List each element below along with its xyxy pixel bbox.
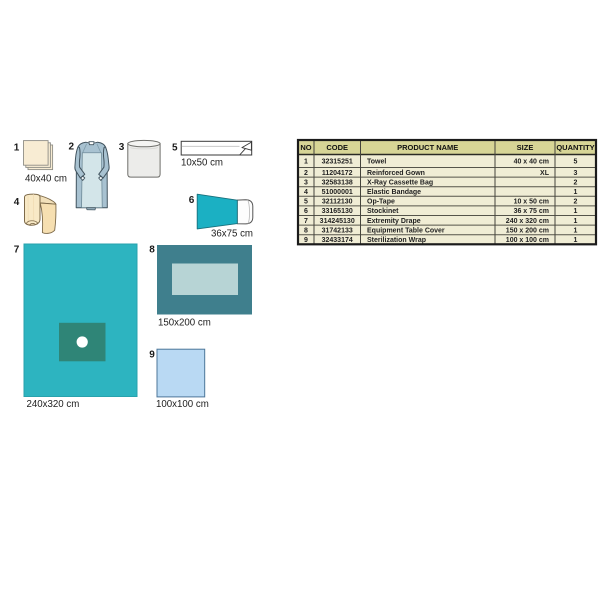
svg-text:4: 4	[304, 189, 308, 196]
svg-text:Equipment Table Cover: Equipment Table Cover	[367, 227, 445, 234]
svg-text:X-Ray Cassette Bag: X-Ray Cassette Bag	[367, 179, 433, 186]
svg-text:9: 9	[304, 237, 308, 244]
svg-text:Stockinet: Stockinet	[367, 208, 399, 215]
svg-text:36x75 cm: 36x75 cm	[211, 229, 253, 240]
svg-text:5: 5	[574, 159, 578, 166]
svg-text:100x100 cm: 100x100 cm	[156, 399, 209, 410]
svg-text:5: 5	[172, 143, 178, 154]
svg-text:CODE: CODE	[326, 143, 348, 152]
svg-text:33165130: 33165130	[322, 208, 353, 215]
svg-text:1: 1	[574, 218, 578, 225]
svg-text:7: 7	[304, 218, 308, 225]
svg-text:40x40 cm: 40x40 cm	[25, 174, 67, 185]
svg-text:Extremity Drape: Extremity Drape	[367, 218, 421, 225]
svg-text:2: 2	[574, 179, 578, 186]
svg-text:NO: NO	[300, 143, 311, 152]
svg-text:2: 2	[69, 141, 75, 152]
svg-text:10x50 cm: 10x50 cm	[181, 157, 223, 168]
svg-text:100 x 100 cm: 100 x 100 cm	[506, 237, 549, 244]
svg-text:1: 1	[574, 227, 578, 234]
svg-text:51000001: 51000001	[322, 189, 353, 196]
svg-text:5: 5	[304, 199, 308, 206]
svg-text:7: 7	[14, 244, 20, 255]
svg-text:Reinforced Gown: Reinforced Gown	[367, 170, 425, 177]
svg-text:31742133: 31742133	[322, 227, 353, 234]
svg-text:2: 2	[304, 170, 308, 177]
svg-text:8: 8	[304, 227, 308, 234]
svg-text:32583138: 32583138	[322, 179, 353, 186]
svg-text:Sterilization Wrap: Sterilization Wrap	[367, 237, 426, 244]
svg-text:36 x 75 cm: 36 x 75 cm	[514, 208, 549, 215]
svg-text:6: 6	[189, 195, 195, 206]
svg-text:8: 8	[149, 245, 155, 256]
svg-text:150 x 200 cm: 150 x 200 cm	[506, 227, 549, 234]
svg-text:1: 1	[574, 189, 578, 196]
svg-text:240x320 cm: 240x320 cm	[27, 399, 80, 410]
svg-text:150x200 cm: 150x200 cm	[158, 317, 211, 328]
svg-text:314245130: 314245130	[320, 218, 355, 225]
svg-text:2: 2	[574, 199, 578, 206]
svg-text:Towel: Towel	[367, 159, 386, 166]
svg-text:SIZE: SIZE	[517, 143, 534, 152]
svg-text:XL: XL	[540, 170, 550, 177]
svg-text:32315251: 32315251	[322, 159, 353, 166]
svg-text:1: 1	[574, 208, 578, 215]
svg-text:11204172: 11204172	[322, 170, 353, 177]
svg-text:Elastic Bandage: Elastic Bandage	[367, 189, 421, 196]
svg-text:3: 3	[574, 170, 578, 177]
svg-text:32433174: 32433174	[322, 237, 353, 244]
svg-text:3: 3	[304, 179, 308, 186]
svg-text:Op-Tape: Op-Tape	[367, 199, 395, 206]
svg-text:32112130: 32112130	[322, 199, 353, 206]
svg-text:1: 1	[14, 142, 20, 153]
svg-text:240 x 320 cm: 240 x 320 cm	[506, 218, 549, 225]
svg-text:QUANTITY: QUANTITY	[556, 143, 594, 152]
svg-text:PRODUCT NAME: PRODUCT NAME	[397, 143, 458, 152]
svg-text:40 x 40 cm: 40 x 40 cm	[514, 159, 549, 166]
svg-text:6: 6	[304, 208, 308, 215]
svg-text:9: 9	[149, 350, 155, 361]
svg-text:4: 4	[14, 197, 20, 208]
svg-text:3: 3	[119, 142, 125, 153]
svg-text:10 x 50 cm: 10 x 50 cm	[514, 199, 549, 206]
svg-text:1: 1	[304, 159, 308, 166]
svg-text:1: 1	[574, 237, 578, 244]
